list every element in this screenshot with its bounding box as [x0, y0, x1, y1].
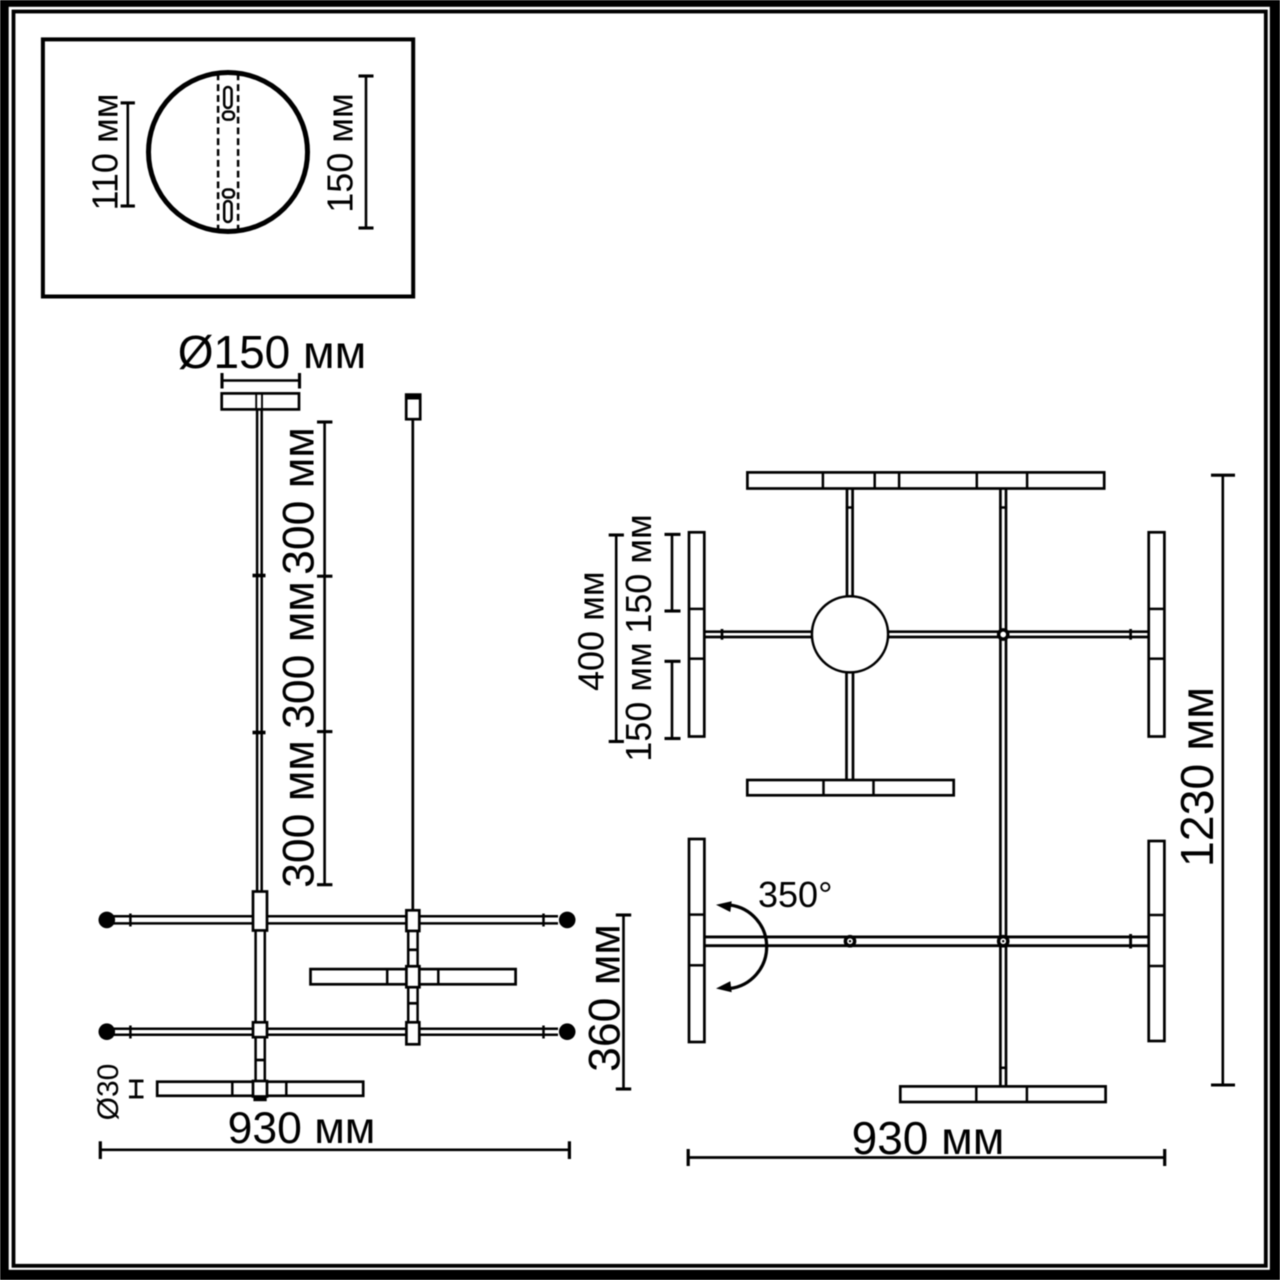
svg-text:Ø30: Ø30	[92, 1064, 125, 1121]
svg-text:1230 мм: 1230 мм	[1171, 687, 1223, 867]
svg-text:300 мм: 300 мм	[275, 427, 324, 575]
svg-text:300 мм: 300 мм	[275, 581, 324, 729]
svg-text:110 мм: 110 мм	[85, 94, 126, 211]
svg-text:Ø150 мм: Ø150 мм	[178, 326, 367, 378]
svg-text:300 мм: 300 мм	[275, 740, 324, 888]
svg-text:930 мм: 930 мм	[852, 1112, 1005, 1164]
svg-text:150 мм: 150 мм	[618, 642, 659, 762]
svg-text:150 мм: 150 мм	[320, 93, 361, 213]
svg-text:360 мм: 360 мм	[581, 924, 630, 1072]
svg-text:350°: 350°	[758, 874, 832, 915]
svg-text:400 мм: 400 мм	[571, 571, 612, 691]
svg-text:930 мм: 930 мм	[228, 1104, 376, 1153]
svg-text:150 мм: 150 мм	[618, 514, 659, 634]
